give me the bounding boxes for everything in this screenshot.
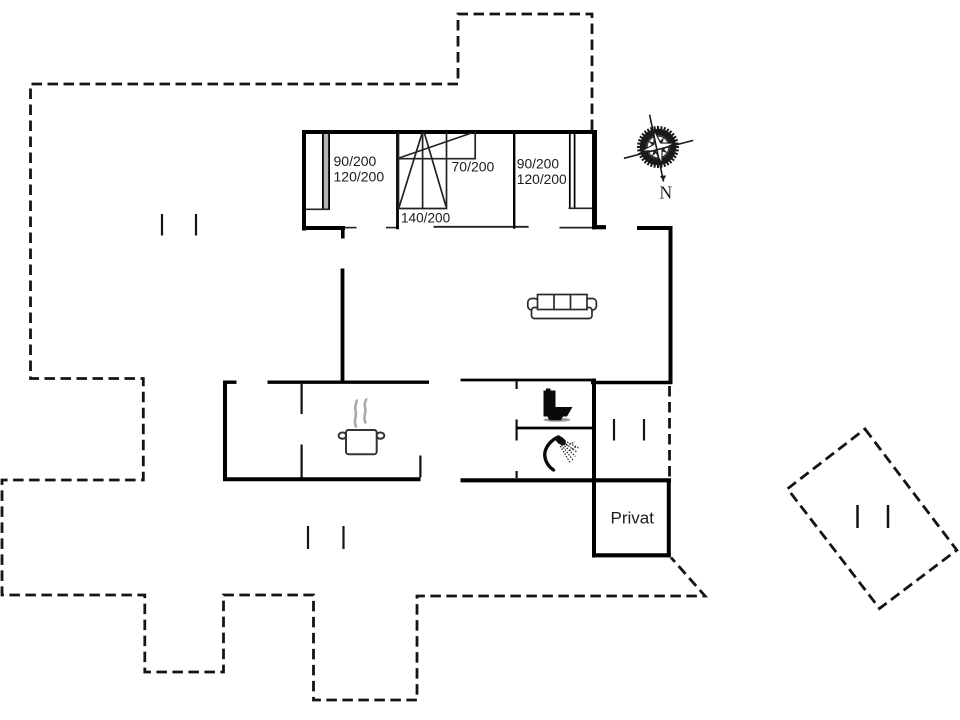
svg-text:90/200: 90/200 [334,153,377,169]
svg-text:N: N [660,183,673,203]
svg-text:120/200: 120/200 [517,172,567,187]
svg-text:Privat: Privat [611,509,655,528]
svg-text:70/200: 70/200 [452,159,495,175]
svg-text:140/200: 140/200 [401,210,451,225]
svg-text:90/200: 90/200 [517,157,560,172]
svg-text:120/200: 120/200 [334,169,385,185]
